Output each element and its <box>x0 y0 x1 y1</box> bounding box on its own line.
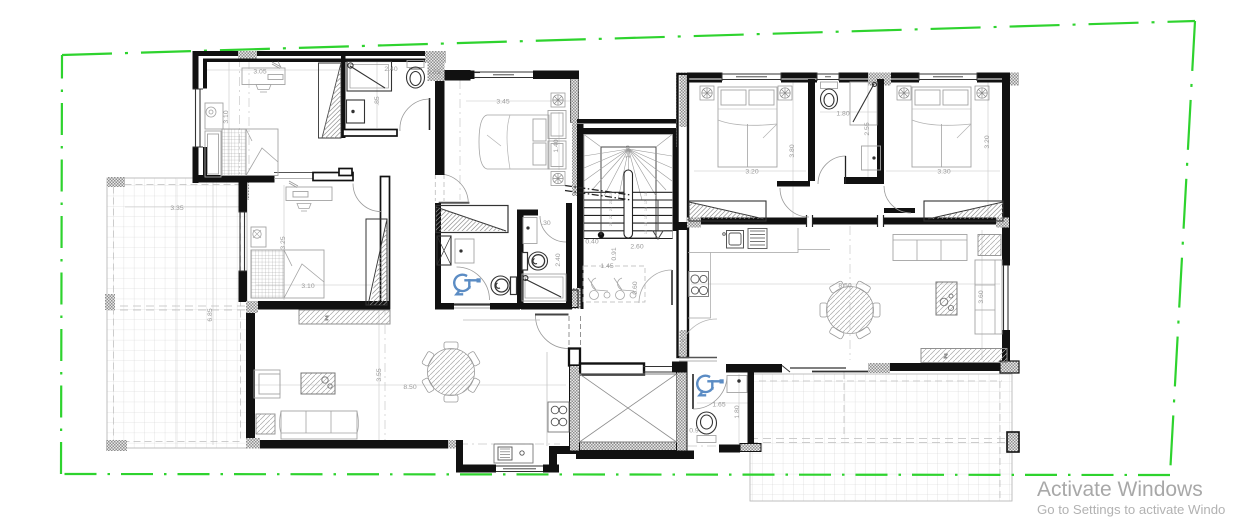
svg-text:1.80: 1.80 <box>734 405 741 418</box>
svg-text:23: 23 <box>609 222 613 226</box>
svg-text:22: 22 <box>609 215 613 219</box>
svg-text:3.30: 3.30 <box>937 169 950 176</box>
svg-text:19: 19 <box>609 192 613 196</box>
svg-text:13: 13 <box>644 230 648 234</box>
svg-text:6.85: 6.85 <box>207 308 214 321</box>
svg-text:1.40: 1.40 <box>553 139 560 152</box>
svg-text:Activate Windows: Activate Windows <box>1037 478 1203 501</box>
svg-text:Go to Settings to activate Win: Go to Settings to activate Windo <box>1037 502 1225 517</box>
svg-text:.30: .30 <box>541 220 551 227</box>
svg-text:0.91: 0.91 <box>611 247 618 260</box>
svg-text:1.80: 1.80 <box>836 111 849 118</box>
svg-text:3.05: 3.05 <box>253 69 266 76</box>
svg-text:1.10: 1.10 <box>625 145 632 158</box>
svg-text:0.40: 0.40 <box>585 239 598 246</box>
svg-text:16: 16 <box>644 207 648 211</box>
svg-text:3.20: 3.20 <box>984 135 991 148</box>
svg-text:3.80: 3.80 <box>789 144 796 157</box>
svg-text:3.55: 3.55 <box>376 368 383 381</box>
svg-text:8.50: 8.50 <box>838 283 851 290</box>
svg-text:3.10: 3.10 <box>301 283 314 290</box>
svg-text:1.45: 1.45 <box>600 263 613 270</box>
svg-text:3.25: 3.25 <box>280 236 287 249</box>
svg-text:21: 21 <box>609 207 613 211</box>
svg-text:z: z <box>943 353 948 360</box>
svg-text:3.45: 3.45 <box>496 99 509 106</box>
svg-text:2.40: 2.40 <box>555 253 562 266</box>
svg-text:2.40: 2.40 <box>384 66 397 73</box>
svg-text:0.9: 0.9 <box>689 428 699 435</box>
svg-text:0.65: 0.65 <box>427 69 440 76</box>
svg-text:20: 20 <box>609 200 613 204</box>
svg-text:14: 14 <box>644 222 648 226</box>
svg-text:3.35: 3.35 <box>170 205 183 212</box>
svg-text:15: 15 <box>644 215 648 219</box>
svg-text:0.60: 0.60 <box>632 281 639 294</box>
svg-text:.85: .85 <box>374 96 381 106</box>
svg-text:3.20: 3.20 <box>745 169 758 176</box>
svg-text:17: 17 <box>644 200 648 204</box>
svg-text:2.55: 2.55 <box>864 122 871 135</box>
svg-text:1.65: 1.65 <box>712 402 725 409</box>
svg-text:18: 18 <box>644 192 648 196</box>
svg-text:z: z <box>324 315 329 322</box>
svg-text:2.60: 2.60 <box>630 244 643 251</box>
svg-text:8.50: 8.50 <box>403 384 416 391</box>
svg-text:3.10: 3.10 <box>223 110 230 123</box>
svg-text:3.60: 3.60 <box>978 290 985 303</box>
